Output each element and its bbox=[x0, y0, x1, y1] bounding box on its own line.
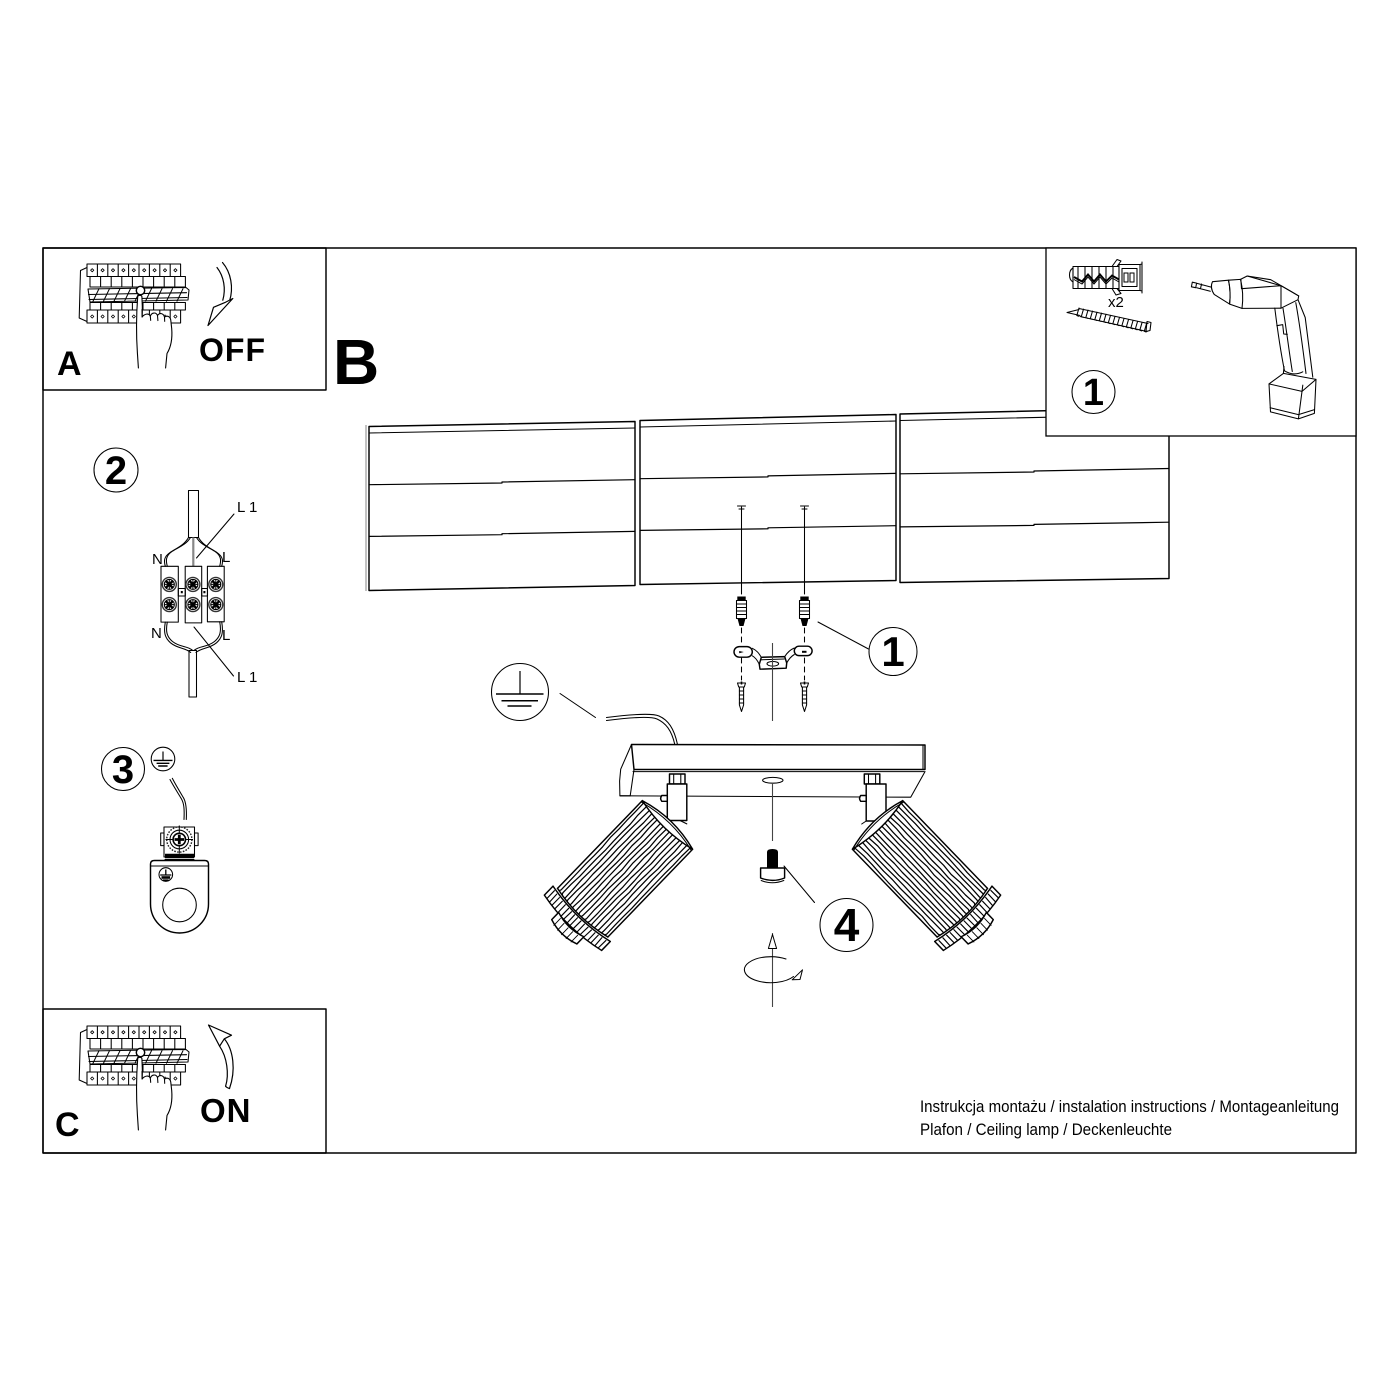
svg-text:Instrukcja montażu / instalati: Instrukcja montażu / instalation instruc… bbox=[920, 1097, 1339, 1116]
svg-text:x2: x2 bbox=[1108, 294, 1124, 311]
svg-text:B: B bbox=[333, 326, 379, 398]
svg-text:4: 4 bbox=[834, 899, 860, 951]
svg-text:1: 1 bbox=[1083, 372, 1104, 414]
svg-text:N: N bbox=[152, 551, 163, 568]
svg-text:N: N bbox=[151, 625, 162, 642]
svg-text:ON: ON bbox=[200, 1092, 252, 1129]
svg-text:3: 3 bbox=[112, 748, 134, 792]
svg-text:L 1: L 1 bbox=[237, 499, 257, 516]
svg-text:L: L bbox=[222, 627, 230, 644]
svg-text:L 1: L 1 bbox=[237, 669, 257, 686]
svg-text:1: 1 bbox=[881, 628, 904, 675]
svg-text:C: C bbox=[55, 1106, 80, 1144]
svg-text:2: 2 bbox=[105, 449, 127, 493]
svg-text:Plafon / Ceiling lamp / Decken: Plafon / Ceiling lamp / Deckenleuchte bbox=[920, 1120, 1172, 1139]
svg-text:OFF: OFF bbox=[199, 332, 266, 368]
svg-text:A: A bbox=[57, 345, 82, 383]
svg-text:L: L bbox=[222, 549, 230, 566]
